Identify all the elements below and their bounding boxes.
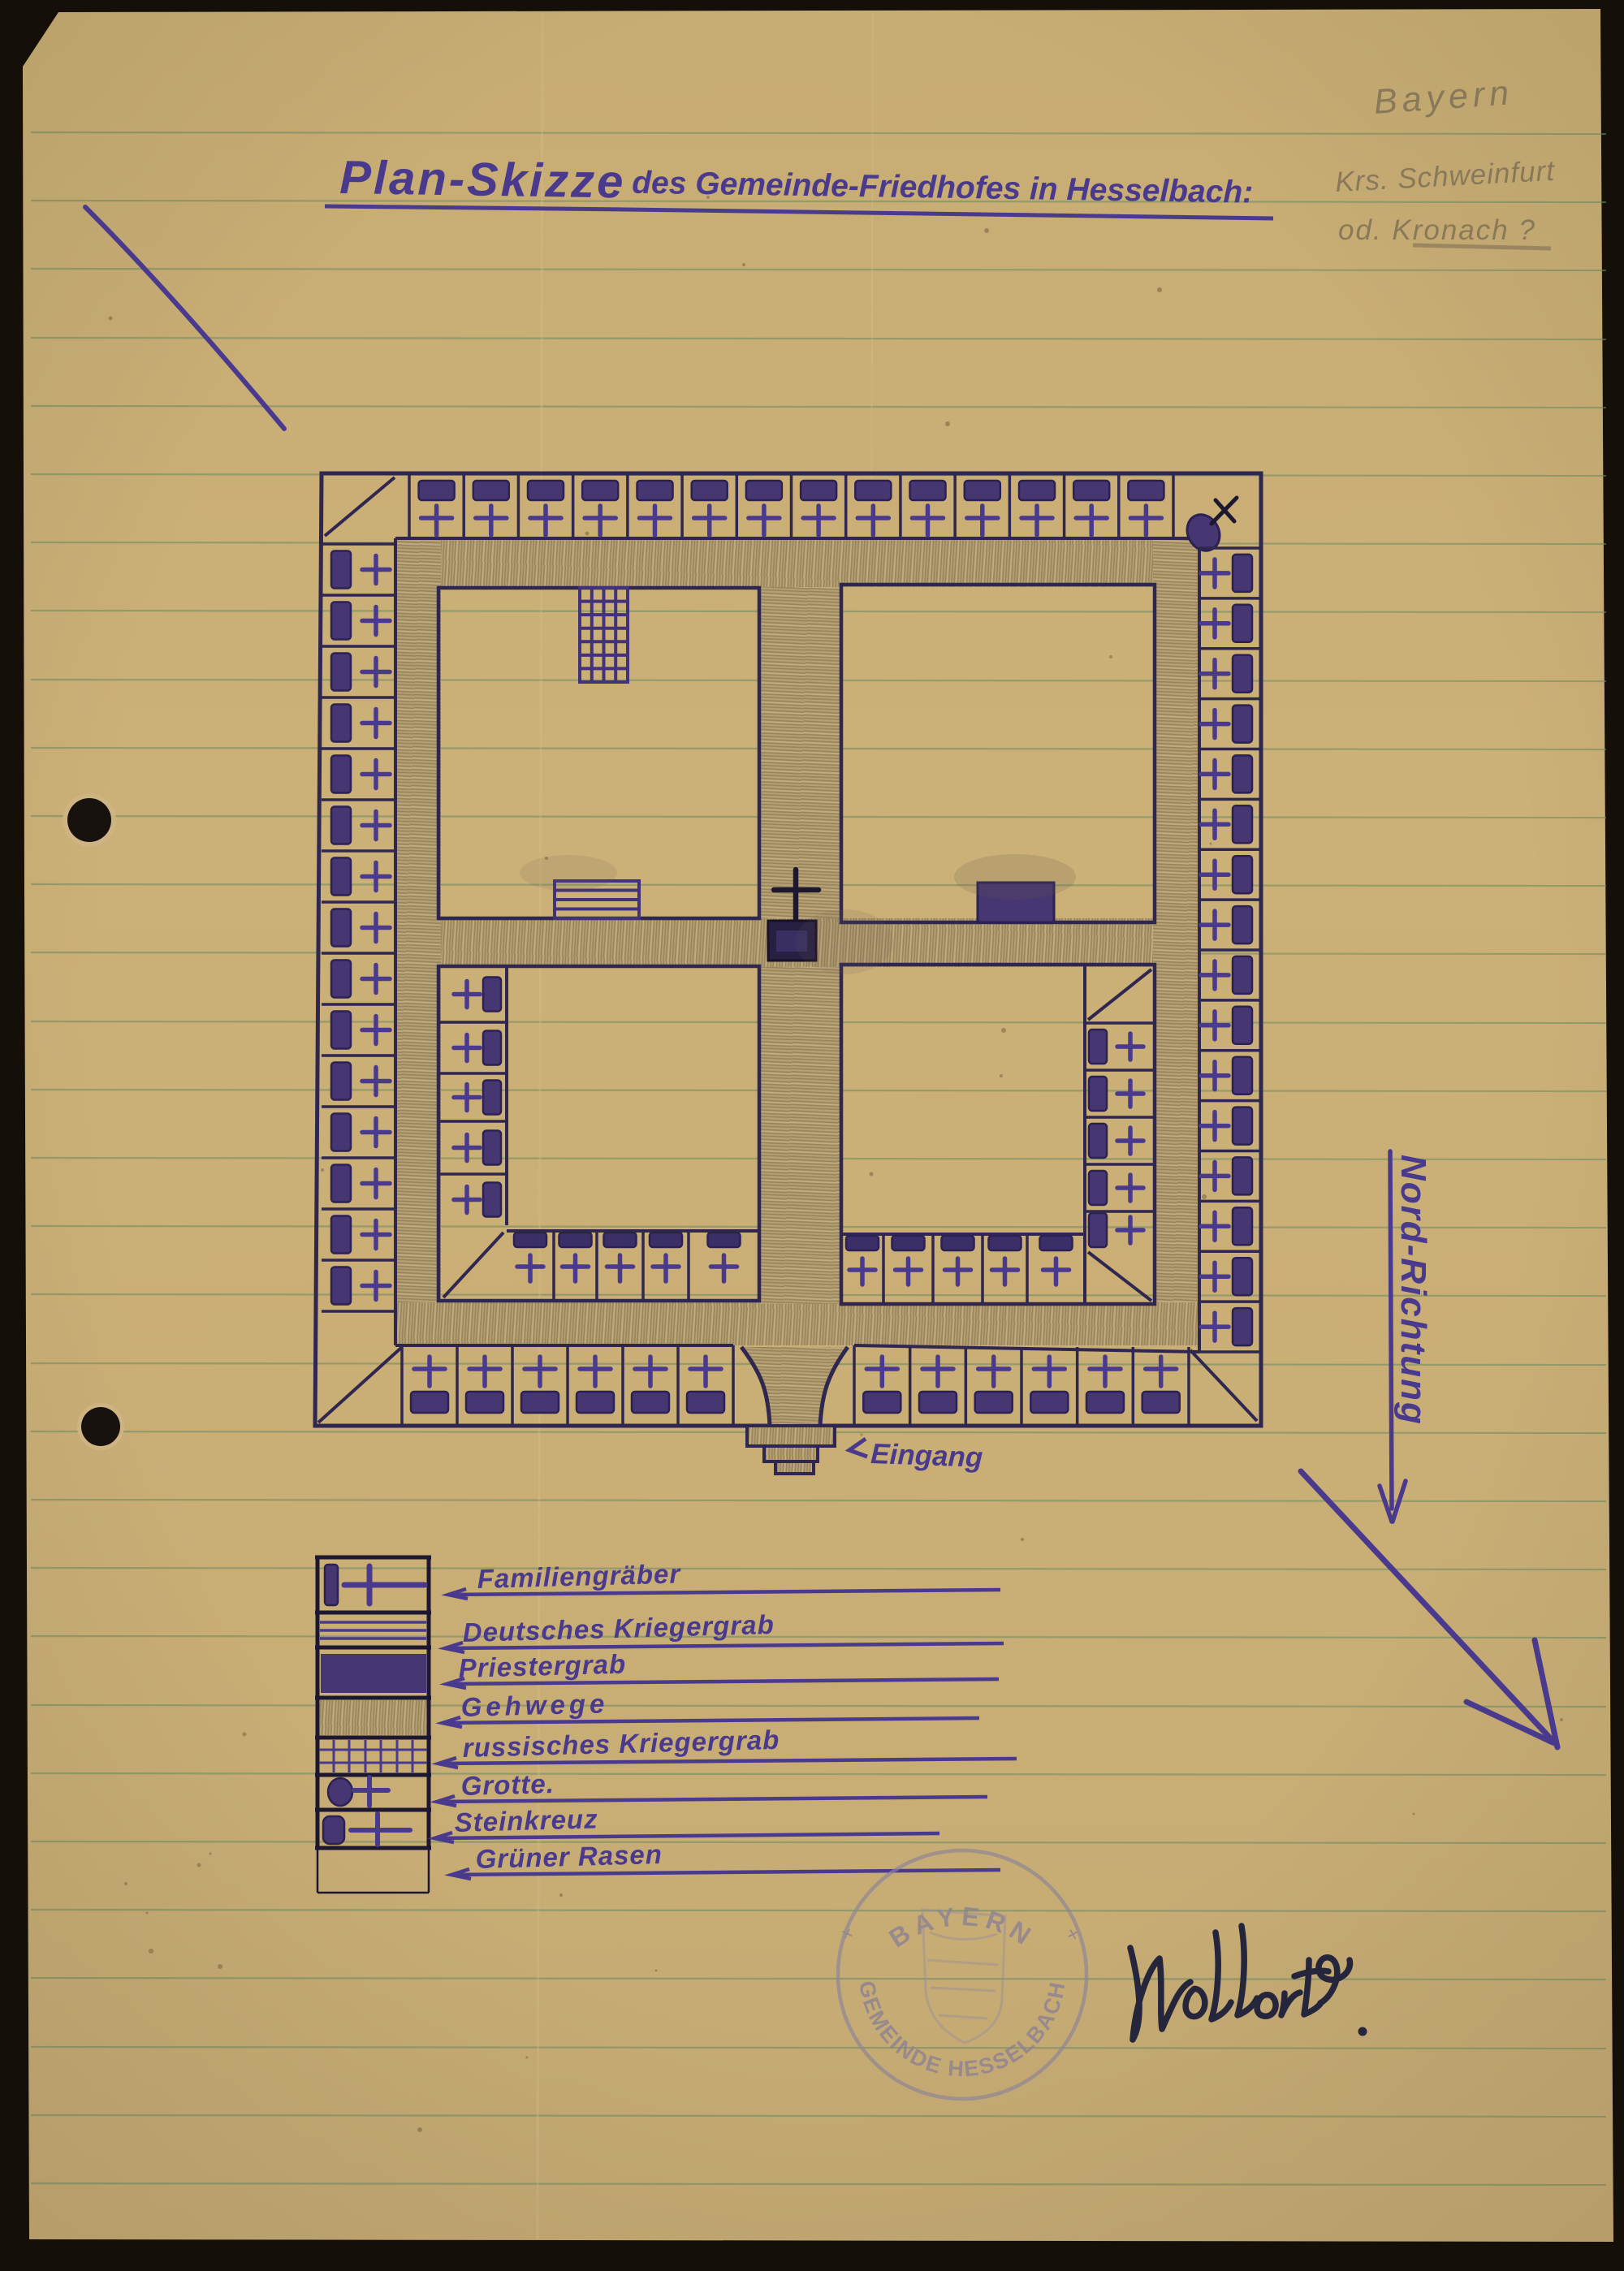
svg-text:Gehwege: Gehwege [460,1688,609,1722]
svg-text:Familiengräber: Familiengräber [477,1558,682,1594]
svg-text:od. Kronach ?: od. Kronach ? [1338,214,1536,246]
svg-text:Plan-Skizze: Plan-Skizze [339,151,626,209]
svg-text:Grotte.: Grotte. [460,1768,555,1801]
svg-text:Eingang: Eingang [870,1438,983,1474]
svg-text:Steinkreuz: Steinkreuz [454,1803,598,1837]
svg-text:Nord-Richtung: Nord-Richtung [1393,1155,1433,1426]
svg-text:Priestergrab: Priestergrab [458,1649,626,1683]
svg-text:Grüner Rasen: Grüner Rasen [475,1839,663,1874]
